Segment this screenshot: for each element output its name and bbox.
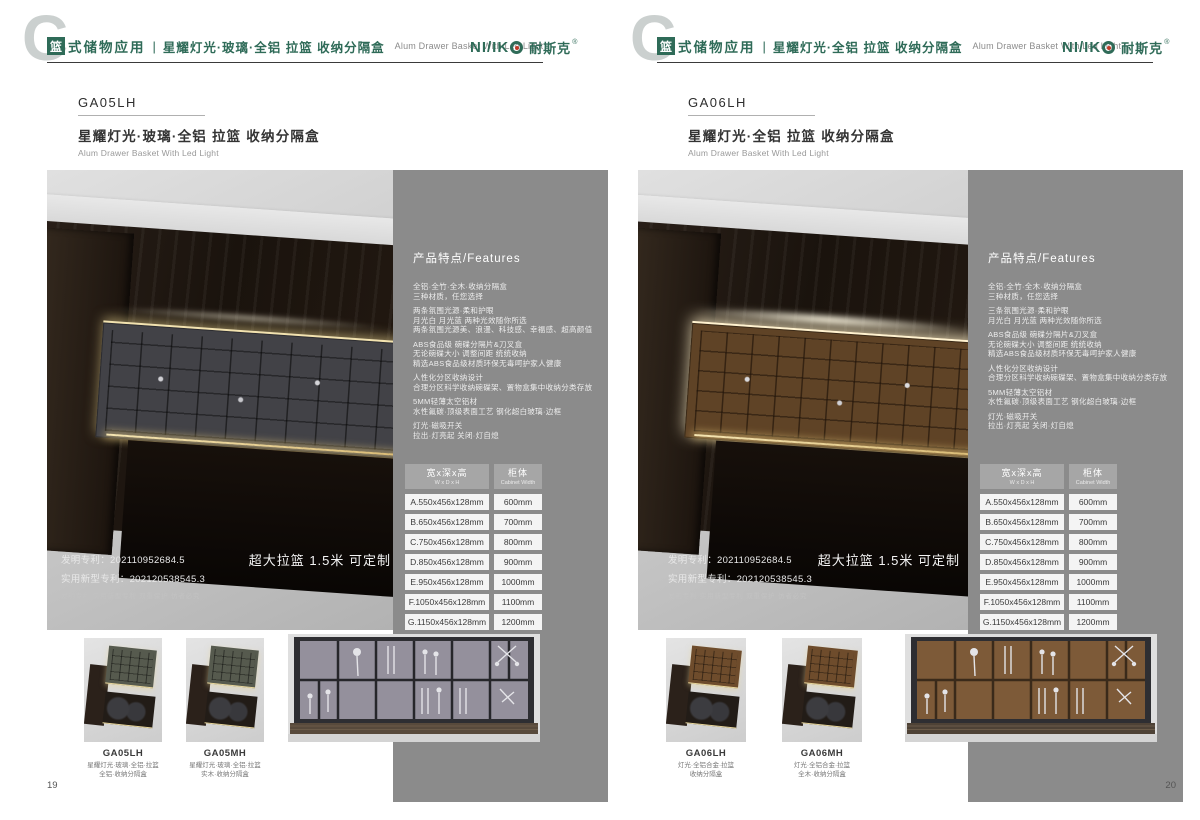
features-list: 全铝·全竹·全木·收纳分隔盒 三种材质，任您选择 两条氛围光源·柔和护眼 月光白… <box>413 282 593 440</box>
feature-group: 三条氛围光源·柔和护眼 月光白 月光蓝 两种光效随你所选 <box>988 306 1168 325</box>
product-thumbnail: GA05MH 星耀灯光·玻璃·全铝·拉篮 实木·收纳分隔盒 <box>186 638 264 779</box>
cabinet-width-cell: 1100mm <box>494 594 542 610</box>
thumbnail-caption: 灯光·全铝合金·拉篮 收纳分隔盒 <box>666 761 746 779</box>
size-table: 宽x深x高 W x D x H 柜体 Cabinet Width A.550x4… <box>980 464 1120 634</box>
size-cell: C.750x456x128mm <box>980 534 1064 550</box>
size-header-en: W x D x H <box>405 480 489 486</box>
header-divider: | <box>153 39 156 54</box>
product-code: GA06LH <box>688 95 895 110</box>
cabinet-width-cell: 900mm <box>1069 554 1117 570</box>
patent-info: 发明专利：202110952684.5 实用新型专利：202120538545.… <box>668 552 812 600</box>
thumbnail-code: GA06LH <box>666 748 746 759</box>
size-table-row: B.650x456x128mm 700mm <box>405 514 545 530</box>
cabinet-header-en: Cabinet Width <box>494 480 542 486</box>
size-table-rows: A.550x456x128mm 600mm B.650x456x128mm 70… <box>980 494 1120 630</box>
main-product-photo: 发明专利：202110952684.5 实用新型专利：202120538545.… <box>47 170 393 630</box>
product-thumbnail: GA05LH 星耀灯光·玻璃·全铝·拉篮 全铝·收纳分隔盒 <box>84 638 162 779</box>
header-rule <box>657 62 1153 63</box>
size-cell: D.850x456x128mm <box>405 554 489 570</box>
feature-group: ABS食品级 碗碟分隔片&刀叉盒 无论碗碟大小 调整间距 统统收纳 精选ABS食… <box>413 340 593 369</box>
thumb-lower-tray-art <box>205 692 258 729</box>
size-table-row: B.650x456x128mm 700mm <box>980 514 1120 530</box>
size-cell: E.950x456x128mm <box>405 574 489 590</box>
nisko-logo-cn: 耐斯克 <box>529 38 571 57</box>
patent-line: 实用新型专利：202120538545.3 <box>668 571 812 585</box>
features-block: 产品特点/Features 全铝·全竹·全木·收纳分隔盒 三种材质，任您选择 两… <box>413 250 593 445</box>
size-table-row: E.950x456x128mm 1000mm <box>405 574 545 590</box>
cabinet-width-cell: 700mm <box>494 514 542 530</box>
thumb-tray-art <box>208 646 260 689</box>
thumb-tray-art <box>804 646 857 689</box>
catalog-page-right: C 篮 式储物应用 | 星耀灯光·全铝 拉篮 收纳分隔盒 Alum Drawer… <box>638 0 1200 820</box>
feature-group: 5MM轻薄太空铝材 水性氟碳·顶级表面工艺 钢化超白玻璃·边框 <box>413 397 593 416</box>
thumbnail-photo <box>186 638 264 742</box>
size-table-header: 宽x深x高 W x D x H 柜体 Cabinet Width <box>405 464 545 489</box>
main-product-photo: 发明专利：202110952684.5 实用新型专利：202120538545.… <box>638 170 968 630</box>
thumb-lower-tray-art <box>685 692 739 729</box>
thumb-lower-tray-art <box>801 692 855 729</box>
page-header: 篮 式储物应用 | 星耀灯光·全铝 拉篮 收纳分隔盒 Alum Drawer B… <box>657 36 1121 56</box>
nisko-logo-latin: NI/IK <box>1062 39 1101 56</box>
thumb-tray-art <box>688 646 741 689</box>
patent-info: 发明专利：202110952684.5 实用新型专利：202120538545.… <box>61 552 205 600</box>
size-table-row: D.850x456x128mm 900mm <box>405 554 545 570</box>
size-table-row: F.1050x456x128mm 1100mm <box>405 594 545 610</box>
page-header: 篮 式储物应用 | 星耀灯光·玻璃·全铝 拉篮 收纳分隔盒 Alum Drawe… <box>47 36 543 56</box>
drawer-topview-photo <box>905 634 1157 742</box>
size-cell: A.550x456x128mm <box>980 494 1064 510</box>
cabinet-header-en: Cabinet Width <box>1069 480 1117 486</box>
size-cell: B.650x456x128mm <box>405 514 489 530</box>
thumbnail-photo <box>782 638 862 742</box>
patent-line: 发明专利：202110952684.5 <box>668 552 812 566</box>
drawer-topview-art <box>905 634 1157 742</box>
size-cell: E.950x456x128mm <box>980 574 1064 590</box>
cabinet-width-cell: 600mm <box>1069 494 1117 510</box>
cabinet-header-cn: 柜体 <box>494 466 542 479</box>
cabinet-header-cn: 柜体 <box>1069 466 1117 479</box>
nisko-logo-cn: 耐斯克 <box>1121 38 1163 57</box>
page-number: 20 <box>1165 780 1176 791</box>
nisko-brand-logo: NI/IK耐斯克® <box>1062 38 1169 57</box>
category-badge: 篮 <box>47 37 65 55</box>
features-list: 全铝·全竹·全木·收纳分隔盒 三种材质，任您选择 三条氛围光源·柔和护眼 月光白… <box>988 282 1168 431</box>
nisko-logo-o-icon <box>1102 41 1115 54</box>
thumb-lower-tray-art <box>103 692 156 729</box>
product-title-block: GA05LH 星耀灯光·玻璃·全铝 拉篮 收纳分隔盒 Alum Drawer B… <box>78 95 320 158</box>
drawer-topview-art <box>288 634 540 742</box>
nisko-logo-red-dot-icon <box>1107 46 1111 50</box>
cabinet-column-header: 柜体 Cabinet Width <box>494 464 542 489</box>
size-table-row: C.750x456x128mm 800mm <box>980 534 1120 550</box>
thumbnail-caption: 灯光·全铝合金·拉篮 全木·收纳分隔盒 <box>782 761 862 779</box>
size-cell: C.750x456x128mm <box>405 534 489 550</box>
thumbnail-caption: 星耀灯光·玻璃·全铝·拉篮 全铝·收纳分隔盒 <box>84 761 162 779</box>
size-column-header: 宽x深x高 W x D x H <box>405 464 489 489</box>
cabinet-width-cell: 1200mm <box>494 614 542 630</box>
cabinet-width-cell: 1100mm <box>1069 594 1117 610</box>
size-header-cn: 宽x深x高 <box>405 466 489 479</box>
product-title-block: GA06LH 星耀灯光·全铝 拉篮 收纳分隔盒 Alum Drawer Bask… <box>688 95 895 158</box>
size-cell: B.650x456x128mm <box>980 514 1064 530</box>
thumbnail-photo <box>666 638 746 742</box>
size-table-row: F.1050x456x128mm 1100mm <box>980 594 1120 610</box>
header-divider: | <box>763 39 766 54</box>
product-title-cn: 星耀灯光·玻璃·全铝 拉篮 收纳分隔盒 <box>78 125 320 145</box>
thumbnail-row: GA06LH 灯光·全铝合金·拉篮 收纳分隔盒 GA06MH 灯光·全铝合金·拉… <box>666 638 862 779</box>
product-thumbnail: GA06LH 灯光·全铝合金·拉篮 收纳分隔盒 <box>666 638 746 779</box>
size-table-row: A.550x456x128mm 600mm <box>405 494 545 510</box>
size-table-header: 宽x深x高 W x D x H 柜体 Cabinet Width <box>980 464 1120 489</box>
cabinet-width-cell: 1200mm <box>1069 614 1117 630</box>
size-header-en: W x D x H <box>980 480 1064 486</box>
nisko-brand-logo: NI/IK耐斯克® <box>470 38 577 57</box>
thumbnail-code: GA05MH <box>186 748 264 759</box>
size-table-row: A.550x456x128mm 600mm <box>980 494 1120 510</box>
category-badge: 篮 <box>657 37 675 55</box>
cabinet-width-cell: 800mm <box>1069 534 1117 550</box>
feature-group: 5MM轻薄太空铝材 水性氟碳·顶级表面工艺 钢化超白玻璃·边框 <box>988 388 1168 407</box>
registered-mark: ® <box>572 39 577 46</box>
header-subtitle-cn: 星耀灯光·玻璃·全铝 拉篮 收纳分隔盒 <box>163 37 385 56</box>
feature-group: 灯光·磁吸开关 拉出·灯亮起 关闭·灯自熄 <box>988 412 1168 431</box>
cabinet-width-cell: 900mm <box>494 554 542 570</box>
features-heading: 产品特点/Features <box>413 250 593 266</box>
cabinet-width-cell: 700mm <box>1069 514 1117 530</box>
thumbnail-caption: 星耀灯光·玻璃·全铝·拉篮 实木·收纳分隔盒 <box>186 761 264 779</box>
product-title-en: Alum Drawer Basket With Led Light <box>688 148 895 158</box>
size-table-row: E.950x456x128mm 1000mm <box>980 574 1120 590</box>
thumb-tray-art <box>106 646 158 689</box>
product-code: GA05LH <box>78 95 320 110</box>
size-table-row: D.850x456x128mm 900mm <box>980 554 1120 570</box>
features-block: 产品特点/Features 全铝·全竹·全木·收纳分隔盒 三种材质，任您选择 三… <box>988 250 1168 436</box>
size-header-cn: 宽x深x高 <box>980 466 1064 479</box>
product-code-underline <box>688 115 815 116</box>
cabinet-width-cell: 1000mm <box>1069 574 1117 590</box>
size-table-row: G.1150x456x128mm 1200mm <box>980 614 1120 630</box>
catalog-page-left: C 篮 式储物应用 | 星耀灯光·玻璃·全铝 拉篮 收纳分隔盒 Alum Dra… <box>30 0 610 820</box>
patent-line: 实用新型专利：202120538545.3 <box>61 571 205 585</box>
drawer-topview-photo <box>288 634 540 742</box>
size-table-row: G.1150x456x128mm 1200mm <box>405 614 545 630</box>
thumbnail-code: GA06MH <box>782 748 862 759</box>
feature-group: 全铝·全竹·全木·收纳分隔盒 三种材质，任您选择 <box>413 282 593 301</box>
header-subtitle-cn: 星耀灯光·全铝 拉篮 收纳分隔盒 <box>773 37 963 56</box>
cabinet-column-header: 柜体 Cabinet Width <box>1069 464 1117 489</box>
feature-group: ABS食品级 碗碟分隔片&刀叉盒 无论碗碟大小 调整间距 统统收纳 精选ABS食… <box>988 330 1168 359</box>
header-rule <box>47 62 543 63</box>
thumbnail-photo <box>84 638 162 742</box>
size-cell: F.1050x456x128mm <box>980 594 1064 610</box>
category-title: 式储物应用 <box>678 36 756 56</box>
cabinet-width-cell: 600mm <box>494 494 542 510</box>
size-table: 宽x深x高 W x D x H 柜体 Cabinet Width A.550x4… <box>405 464 545 634</box>
size-cell: G.1150x456x128mm <box>405 614 489 630</box>
feature-group: 灯光·磁吸开关 拉出·灯亮起 关闭·灯自熄 <box>413 421 593 440</box>
size-table-rows: A.550x456x128mm 600mm B.650x456x128mm 70… <box>405 494 545 630</box>
nisko-logo-o-icon <box>510 41 523 54</box>
nisko-logo-red-dot-icon <box>515 46 519 50</box>
patent-notice: 发明专利 实用新型专利 双重保护 仿者必究 <box>61 590 205 600</box>
product-code-underline <box>78 115 205 116</box>
page-number: 19 <box>47 780 58 791</box>
feature-group: 人性化分区收纳设计 合理分区科学收纳碗碟架、置物盒集中收纳分类存放 <box>988 364 1168 383</box>
patent-line: 发明专利：202110952684.5 <box>61 552 205 566</box>
oversize-note: 超大拉篮 1.5米 可定制 <box>249 550 391 569</box>
feature-group: 全铝·全竹·全木·收纳分隔盒 三种材质，任您选择 <box>988 282 1168 301</box>
size-table-row: C.750x456x128mm 800mm <box>405 534 545 550</box>
patent-notice: 发明专利 实用新型专利 双重保护 仿者必究 <box>668 590 812 600</box>
category-title: 式储物应用 <box>68 36 146 56</box>
catalog-spread: C 篮 式储物应用 | 星耀灯光·玻璃·全铝 拉篮 收纳分隔盒 Alum Dra… <box>0 0 1200 820</box>
product-title-cn: 星耀灯光·全铝 拉篮 收纳分隔盒 <box>688 125 895 145</box>
size-cell: D.850x456x128mm <box>980 554 1064 570</box>
cabinet-width-cell: 800mm <box>494 534 542 550</box>
oversize-note: 超大拉篮 1.5米 可定制 <box>818 550 960 569</box>
thumbnail-code: GA05LH <box>84 748 162 759</box>
feature-group: 两条氛围光源·柔和护眼 月光白 月光蓝 两种光效随你所选 两条氛围光源美、浪漫、… <box>413 306 593 335</box>
registered-mark: ® <box>1164 39 1169 46</box>
size-cell: G.1150x456x128mm <box>980 614 1064 630</box>
features-heading: 产品特点/Features <box>988 250 1168 266</box>
thumbnail-row: GA05LH 星耀灯光·玻璃·全铝·拉篮 全铝·收纳分隔盒 GA05MH 星耀灯… <box>84 638 264 779</box>
feature-group: 人性化分区收纳设计 合理分区科学收纳碗碟架、置物盒集中收纳分类存放 <box>413 373 593 392</box>
cabinet-width-cell: 1000mm <box>494 574 542 590</box>
size-cell: F.1050x456x128mm <box>405 594 489 610</box>
product-thumbnail: GA06MH 灯光·全铝合金·拉篮 全木·收纳分隔盒 <box>782 638 862 779</box>
nisko-logo-latin: NI/IK <box>470 39 509 56</box>
product-title-en: Alum Drawer Basket With Led Light <box>78 148 320 158</box>
size-column-header: 宽x深x高 W x D x H <box>980 464 1064 489</box>
size-cell: A.550x456x128mm <box>405 494 489 510</box>
